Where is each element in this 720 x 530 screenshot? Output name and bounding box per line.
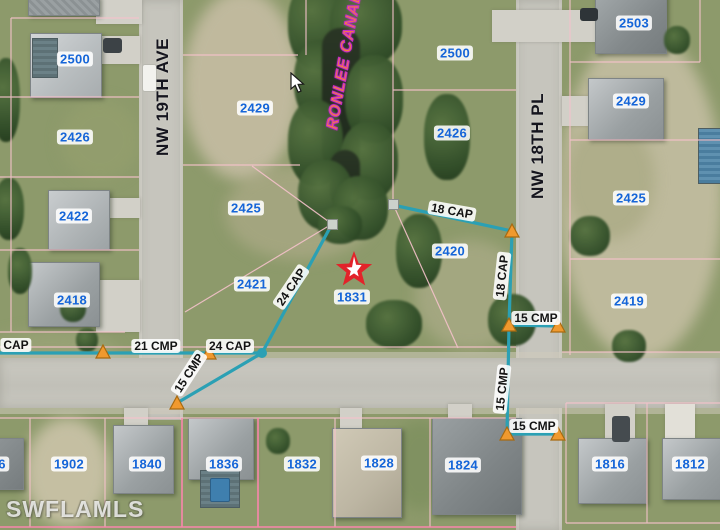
street-label-nw-19th-ave: NW 19TH AVE <box>153 38 173 156</box>
measurement-label: 18 CAP <box>427 200 477 222</box>
measurement-labels-layer: 18 CAP 18 CAP 24 CAP 24 CAP 21 CMP CAP 1… <box>0 0 720 530</box>
measurement-label: 15 CMP <box>509 419 558 433</box>
measurement-label: 21 CMP <box>131 339 180 353</box>
street-label-nw-18th-pl: NW 18TH PL <box>528 93 548 199</box>
measurement-label: 15 CMP <box>492 364 511 415</box>
measurement-label: 18 CAP <box>493 251 512 300</box>
measurement-label: 15 CMP <box>511 311 560 325</box>
aerial-parcel-map[interactable]: 2500 2426 2429 2500 2426 2503 2429 2425 … <box>0 0 720 530</box>
mouse-cursor <box>290 72 306 94</box>
measurement-label-clipped: CAP <box>0 338 31 352</box>
measurement-label: 24 CAP <box>206 339 254 353</box>
measurement-label: 15 CMP <box>170 348 209 397</box>
mls-watermark: SWFLAMLS <box>6 496 144 523</box>
measurement-label: 24 CAP <box>272 263 310 311</box>
